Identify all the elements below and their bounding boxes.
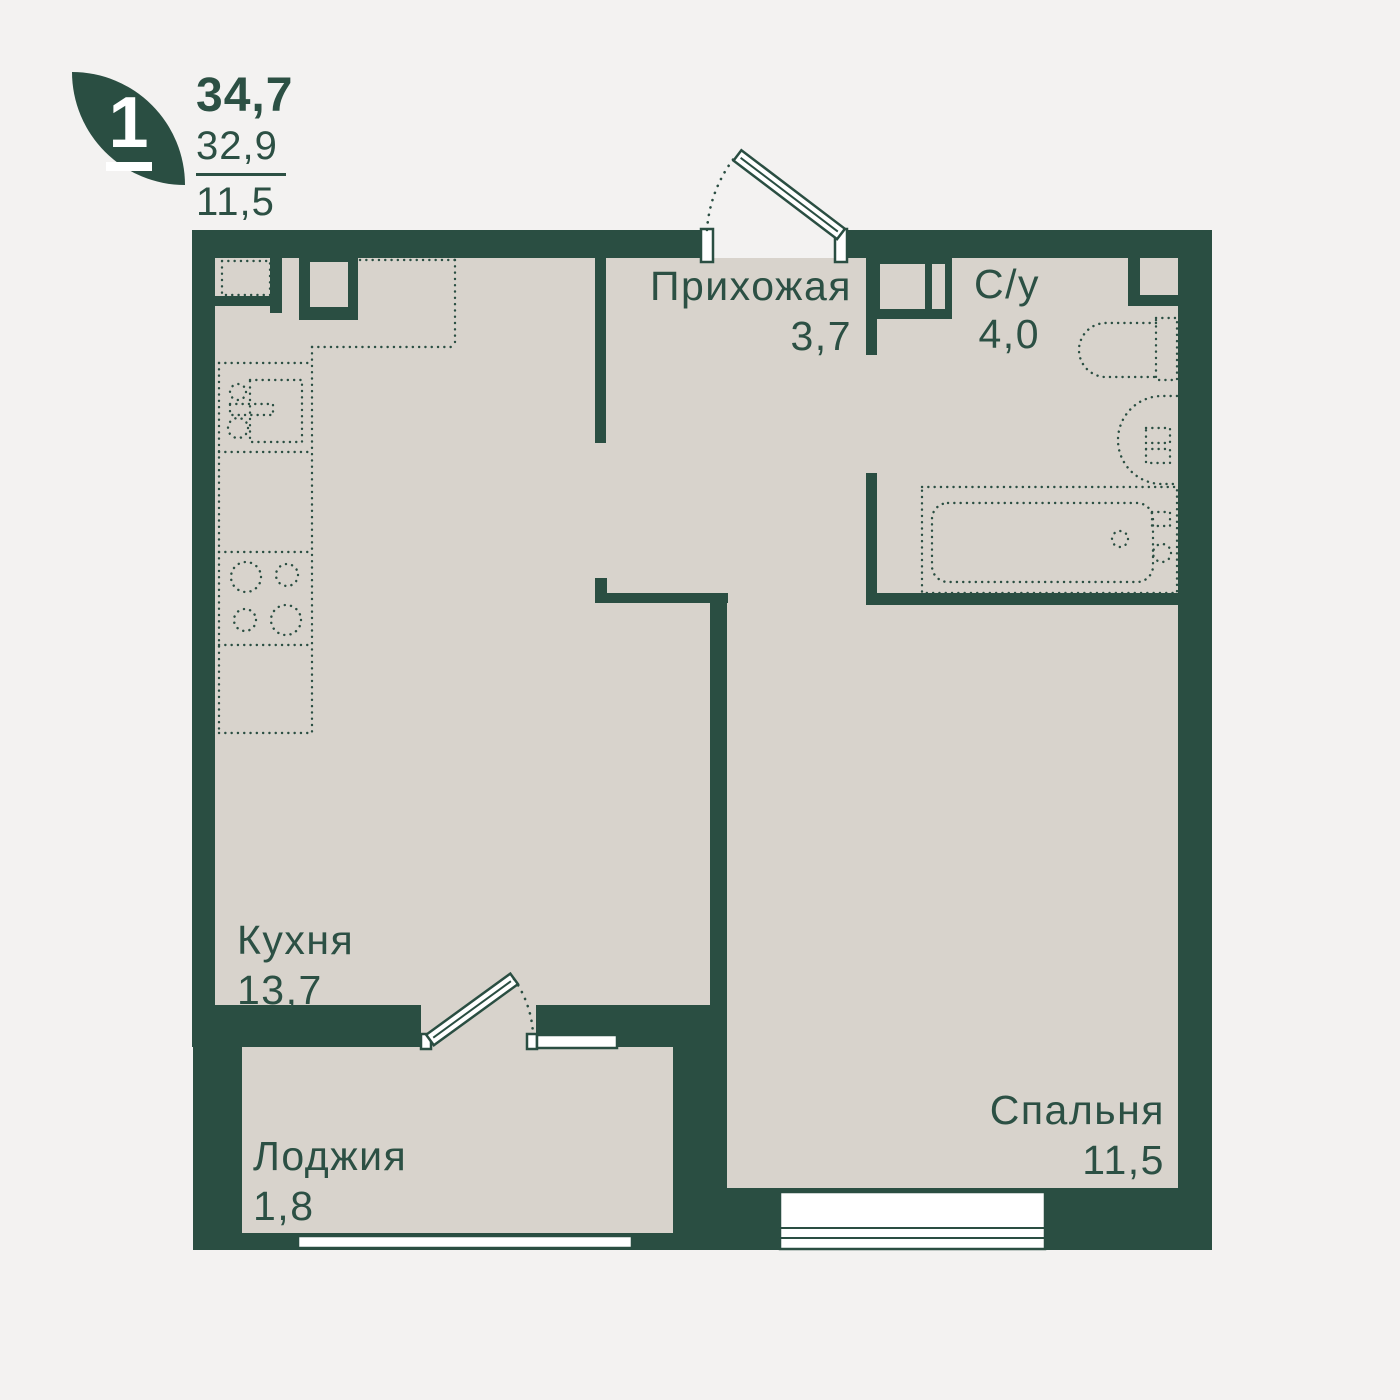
- entrance-door: [701, 150, 847, 262]
- door-swing-arc: [707, 157, 735, 230]
- room-area: 13,7: [237, 965, 354, 1015]
- floor-plan-drawing: [0, 0, 1400, 1400]
- room-label-bathroom: С/у 4,0: [880, 259, 1040, 359]
- loggia-window: [298, 1236, 632, 1248]
- room-area: 3,7: [560, 311, 852, 361]
- room-name: Лоджия: [253, 1131, 407, 1181]
- door-jamb: [527, 1034, 537, 1049]
- room-name: Спальня: [880, 1085, 1165, 1135]
- room-label-loggia: Лоджия 1,8: [253, 1131, 407, 1231]
- kitchen-balcony-window: [537, 1035, 617, 1048]
- room-label-hallway: Прихожая 3,7: [560, 261, 852, 361]
- room-label-bedroom: Спальня 11,5: [880, 1085, 1165, 1185]
- floor-plan-page: 1 34,7 32,9 11,5: [0, 0, 1400, 1400]
- bedroom-window: [780, 1192, 1045, 1249]
- entrance-door-leaf: [734, 150, 845, 239]
- room-name: Кухня: [237, 915, 354, 965]
- room-area: 4,0: [880, 309, 1040, 359]
- room-name: С/у: [880, 259, 1040, 309]
- room-name: Прихожая: [560, 261, 852, 311]
- door-jamb: [701, 229, 713, 262]
- room-area: 11,5: [880, 1135, 1165, 1185]
- room-area: 1,8: [253, 1181, 407, 1231]
- room-label-kitchen: Кухня 13,7: [237, 915, 354, 1015]
